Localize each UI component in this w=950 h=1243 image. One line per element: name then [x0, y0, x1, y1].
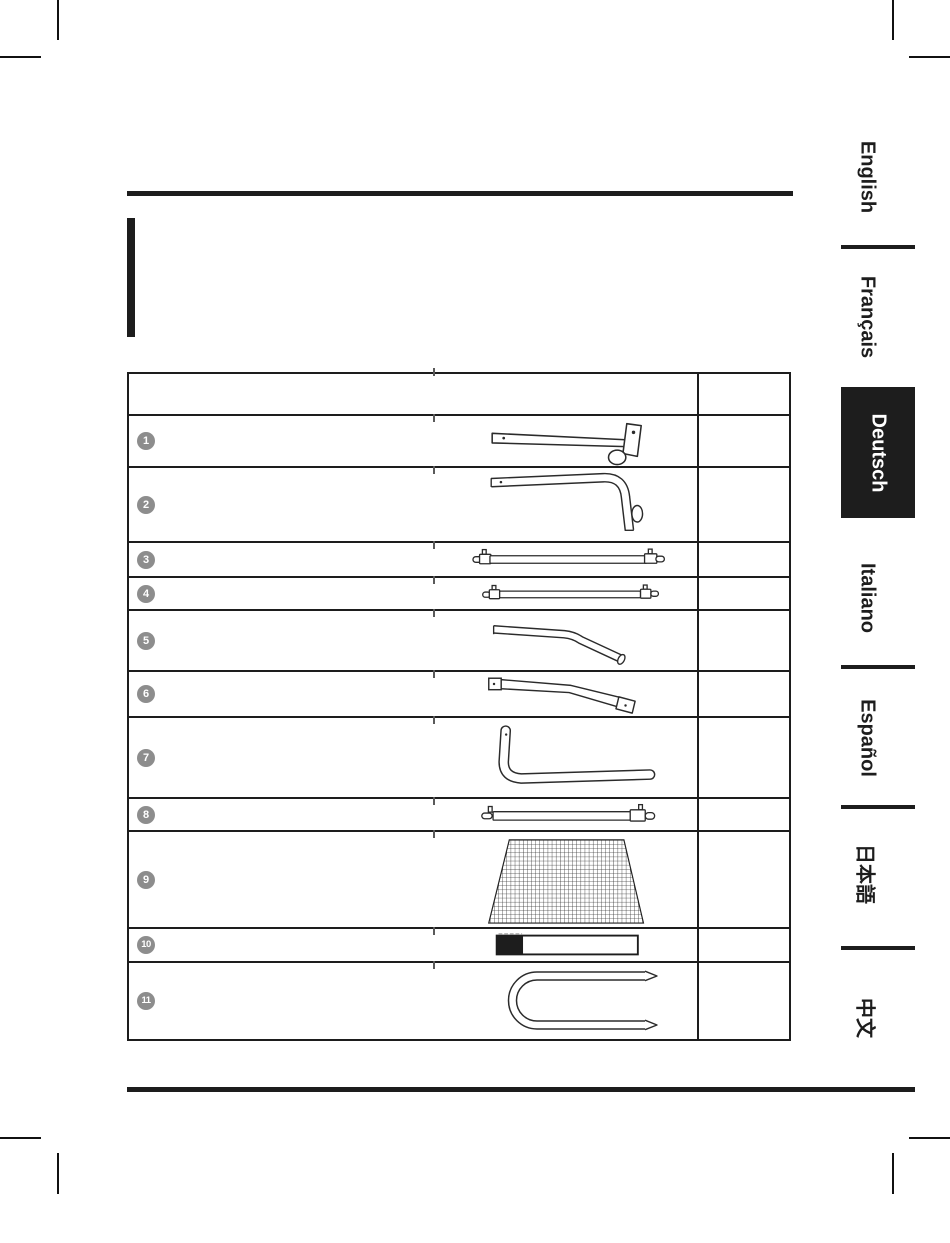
column-guide-tick: [433, 368, 435, 376]
part-number-badge: 8: [137, 806, 155, 824]
page: 1 2: [0, 0, 950, 1243]
table-row: 2: [129, 468, 789, 543]
net-panel-icon: [459, 832, 684, 927]
column-guide-tick: [433, 609, 435, 617]
table-row: 8: [129, 799, 789, 832]
table-row: 3: [129, 543, 789, 578]
chapter-marker-bar: [127, 218, 135, 337]
column-guide-tick: [433, 541, 435, 549]
crop-mark-bottom-left-horizontal: [0, 1137, 41, 1139]
language-tab-divider: [841, 805, 915, 809]
long-pole-with-pins-icon: [459, 543, 684, 576]
crop-mark-top-right-vertical: [892, 0, 894, 40]
part-number-badge: 7: [137, 749, 155, 767]
column-guide-tick: [433, 961, 435, 969]
part-number-badge: 6: [137, 685, 155, 703]
column-guide-tick: [433, 797, 435, 805]
parts-table: 1 2: [127, 372, 791, 1041]
column-guide-tick: [433, 414, 435, 422]
table-row: 5: [129, 611, 789, 672]
language-tab-divider: [841, 946, 915, 950]
table-row: 10: [129, 929, 789, 963]
crop-mark-bottom-right-vertical: [892, 1153, 894, 1194]
crop-mark-top-left-vertical: [57, 0, 59, 40]
top-rule: [127, 191, 793, 196]
crop-mark-bottom-left-vertical: [57, 1153, 59, 1194]
part-number-badge: 3: [137, 551, 155, 569]
table-row: 6: [129, 672, 789, 718]
column-guide-tick: [433, 576, 435, 584]
bent-elbow-tube-icon: [459, 468, 684, 541]
strap-icon: [459, 929, 684, 961]
part-number-badge: 9: [137, 871, 155, 889]
bottom-rule: [127, 1087, 915, 1092]
part-number-badge: 4: [137, 585, 155, 603]
linkage-tube-with-fittings-icon: [459, 672, 684, 716]
u-shaped-tube-icon: [459, 963, 684, 1039]
table-row: 11: [129, 963, 789, 1039]
part-number-badge: 11: [137, 992, 155, 1010]
table-row: 4: [129, 578, 789, 611]
part-number-badge: 5: [137, 632, 155, 650]
language-tab-espanol: Español: [856, 699, 879, 777]
column-guide-tick: [433, 466, 435, 474]
language-tab-deutsch-active: Deutsch: [841, 387, 915, 518]
column-guide-tick: [433, 716, 435, 724]
language-tab-deutsch-label: Deutsch: [867, 413, 890, 492]
column-guide-tick: [433, 830, 435, 838]
table-row: 9: [129, 832, 789, 929]
language-tab-italiano: Italiano: [856, 563, 879, 633]
table-row: 7: [129, 718, 789, 799]
language-tab-divider: [841, 245, 915, 249]
crop-mark-top-left-horizontal: [0, 56, 41, 58]
language-tab-english: English: [856, 141, 879, 213]
part-number-badge: 1: [137, 432, 155, 450]
part-number-badge: 10: [137, 936, 155, 954]
l-shaped-tube-icon: [459, 718, 684, 797]
part-number-badge: 2: [137, 496, 155, 514]
table-header-row: [129, 374, 789, 416]
language-tab-chinese: 中文: [853, 998, 882, 1038]
table-row: 1: [129, 416, 789, 468]
bracket-arm-tube-icon: [459, 416, 684, 466]
angled-tube-icon: [459, 611, 684, 670]
language-tab-japanese: 日本語: [853, 844, 882, 904]
column-guide-tick: [433, 670, 435, 678]
language-tab-francais: Français: [856, 276, 879, 358]
crossbar-tube-with-caps-icon: [459, 799, 684, 830]
crop-mark-bottom-right-horizontal: [909, 1137, 950, 1139]
language-tab-divider: [841, 665, 915, 669]
short-pole-with-pins-icon: [459, 578, 684, 609]
column-guide-tick: [433, 927, 435, 935]
crop-mark-top-right-horizontal: [909, 56, 950, 58]
